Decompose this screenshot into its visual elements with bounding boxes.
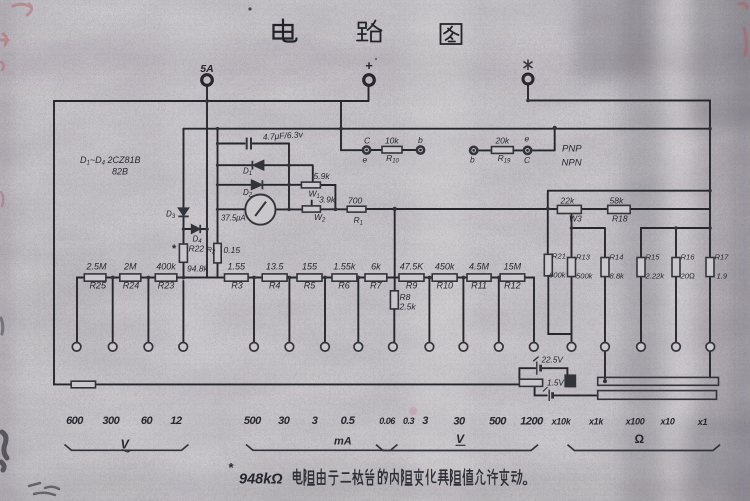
svg-text:x1: x1 (697, 417, 708, 427)
svg-text:Ω: Ω (635, 432, 645, 446)
svg-text:4.5M: 4.5M (469, 262, 490, 272)
svg-text:e: e (363, 155, 368, 165)
svg-text:e: e (525, 134, 530, 144)
svg-text:R15: R15 (646, 253, 661, 262)
svg-text:300: 300 (102, 415, 120, 427)
svg-text:x10k: x10k (551, 417, 572, 427)
svg-text:R18: R18 (612, 214, 628, 224)
svg-text:10k: 10k (385, 136, 399, 146)
svg-text:450k: 450k (435, 262, 455, 272)
svg-text:R16: R16 (681, 253, 696, 262)
svg-text:D1~D4 2CZ81B: D1~D4 2CZ81B (80, 155, 140, 167)
svg-text:94.8k: 94.8k (187, 264, 209, 274)
svg-text:*: * (172, 243, 177, 255)
svg-text:37.5μA: 37.5μA (221, 214, 246, 223)
svg-text:R4: R4 (269, 281, 281, 291)
svg-text:3: 3 (422, 415, 428, 427)
svg-text:R17: R17 (715, 253, 730, 262)
svg-text:5A: 5A (200, 63, 213, 75)
svg-text:8.8k: 8.8k (610, 272, 626, 281)
svg-text:R23: R23 (158, 281, 175, 291)
svg-text:3.9k: 3.9k (319, 195, 336, 205)
svg-text:500: 500 (489, 416, 507, 428)
svg-text:0.06: 0.06 (379, 416, 396, 426)
svg-text:0.5: 0.5 (341, 415, 356, 427)
svg-text:2.5M: 2.5M (85, 262, 107, 272)
svg-text:x10: x10 (659, 417, 674, 427)
svg-text:R25: R25 (89, 281, 107, 291)
svg-text:22.5V: 22.5V (541, 356, 565, 365)
svg-text:R24: R24 (123, 281, 140, 291)
svg-text:R7: R7 (370, 281, 382, 291)
svg-text:6k: 6k (371, 262, 381, 272)
svg-text:700: 700 (348, 196, 362, 206)
svg-text:2.5k: 2.5k (399, 302, 417, 312)
svg-text:C: C (364, 136, 371, 146)
svg-text:R5: R5 (304, 281, 316, 291)
svg-text:R11: R11 (471, 281, 487, 291)
svg-text:PNP: PNP (562, 144, 582, 155)
svg-text:C: C (524, 155, 531, 165)
svg-text:NPN: NPN (562, 158, 582, 169)
svg-text:R3: R3 (231, 281, 243, 291)
svg-text:R6: R6 (338, 281, 350, 291)
svg-text:x1k: x1k (588, 417, 604, 427)
svg-text:15M: 15M (504, 262, 522, 272)
svg-text:R14: R14 (610, 253, 624, 262)
svg-text:1.5V: 1.5V (547, 379, 565, 388)
svg-text:20k: 20k (494, 136, 509, 146)
svg-text:R8: R8 (400, 292, 411, 302)
svg-text:2.22k: 2.22k (645, 272, 666, 281)
svg-text:1.55k: 1.55k (333, 262, 356, 272)
svg-text:R21: R21 (552, 252, 566, 261)
svg-text:R9: R9 (406, 281, 418, 291)
svg-text:30: 30 (278, 415, 291, 427)
svg-text:1.55: 1.55 (228, 262, 247, 272)
svg-text:2M: 2M (123, 262, 137, 272)
svg-text:13.5: 13.5 (266, 262, 285, 272)
svg-text:155: 155 (302, 262, 318, 272)
svg-text:500: 500 (244, 415, 262, 427)
svg-text:x100: x100 (625, 417, 645, 427)
svg-text:W3: W3 (569, 214, 582, 224)
svg-text:12: 12 (170, 415, 182, 427)
svg-text:+: + (365, 58, 373, 73)
svg-text:400k: 400k (156, 262, 176, 272)
svg-text:R12: R12 (504, 281, 521, 291)
svg-text:R13: R13 (576, 253, 591, 262)
svg-text:60: 60 (141, 415, 154, 427)
svg-text:82B: 82B (112, 167, 128, 177)
svg-text:600k: 600k (549, 271, 567, 280)
svg-text:1.9: 1.9 (717, 272, 728, 281)
svg-text:58k: 58k (610, 196, 624, 206)
svg-text:600: 600 (66, 415, 84, 427)
svg-text:b: b (470, 155, 475, 165)
svg-text:R22: R22 (189, 244, 205, 254)
svg-text:500k: 500k (576, 272, 594, 281)
svg-text:5.9k: 5.9k (314, 171, 331, 181)
svg-text:948kΩ: 948kΩ (239, 472, 283, 488)
svg-text:0.3: 0.3 (403, 416, 415, 426)
svg-text:47.5K: 47.5K (400, 262, 425, 272)
svg-text:20Ω: 20Ω (680, 272, 695, 281)
svg-text:30: 30 (453, 416, 466, 428)
svg-text:b: b (418, 135, 423, 145)
svg-text:1200: 1200 (520, 416, 544, 428)
svg-text:22k: 22k (560, 196, 575, 206)
svg-text:mA: mA (334, 436, 352, 448)
svg-text:R10: R10 (437, 281, 454, 291)
svg-text:0.15: 0.15 (224, 245, 241, 255)
svg-text:3: 3 (312, 415, 318, 427)
svg-text:V: V (456, 432, 465, 446)
